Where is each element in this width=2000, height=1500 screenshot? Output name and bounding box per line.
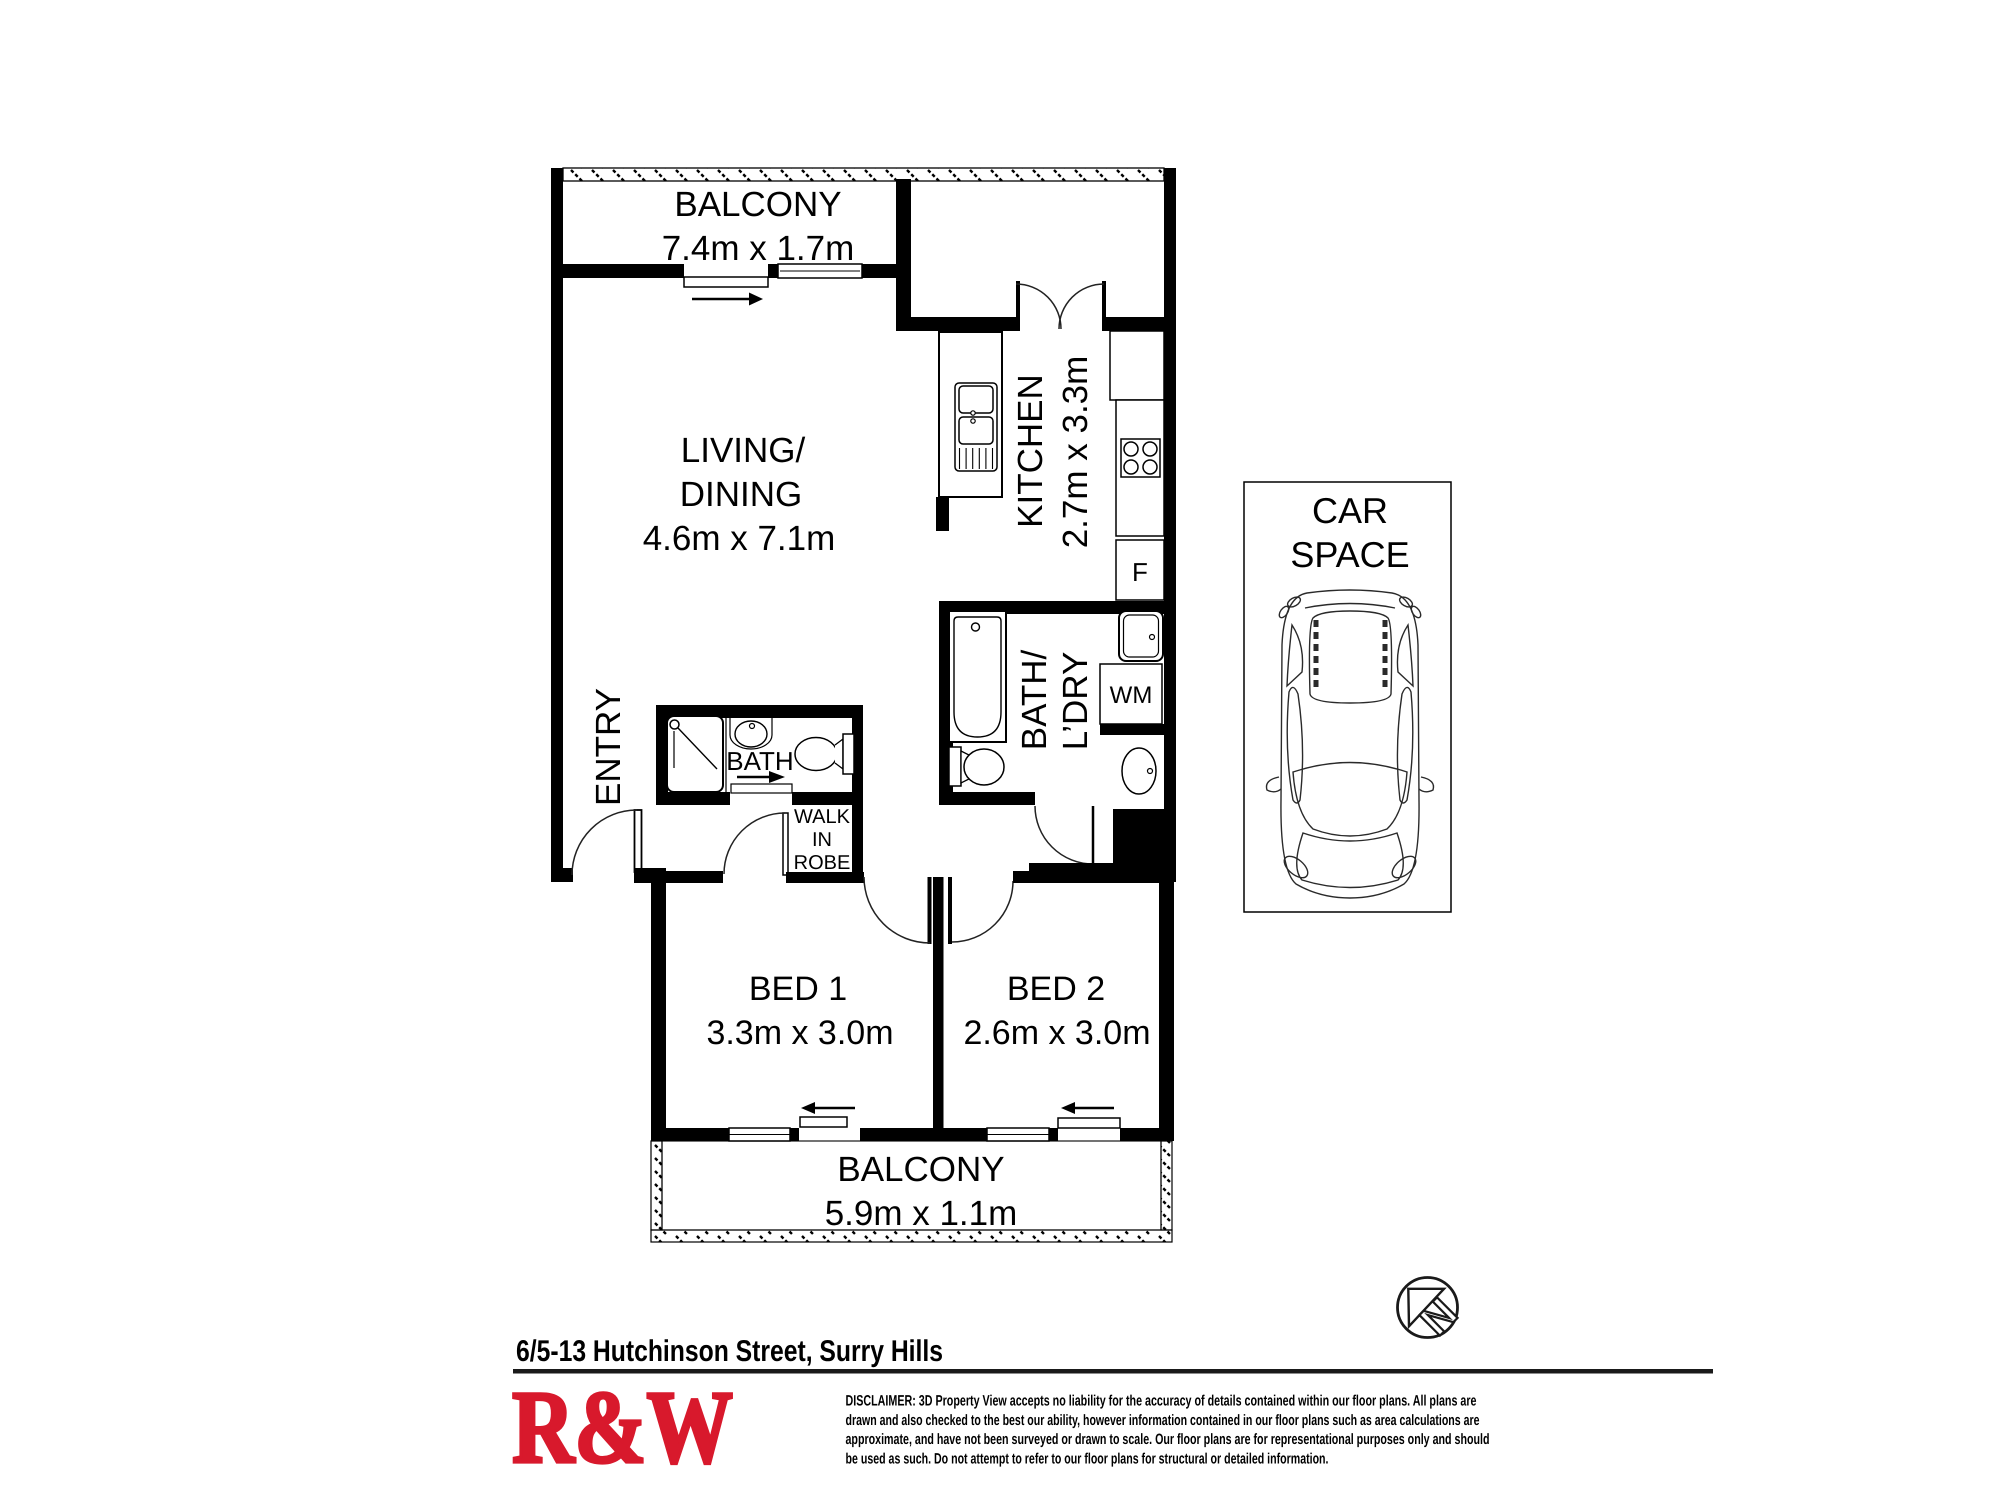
- svg-text:BED 2: BED 2: [1007, 970, 1105, 1008]
- svg-text:IN: IN: [812, 829, 832, 851]
- svg-text:WM: WM: [1110, 682, 1153, 709]
- svg-text:CAR: CAR: [1312, 490, 1388, 531]
- svg-text:L’DRY: L’DRY: [1056, 652, 1095, 751]
- svg-text:2.7m x 3.3m: 2.7m x 3.3m: [1056, 356, 1095, 549]
- svg-text:DINING: DINING: [680, 475, 803, 514]
- svg-text:KITCHEN: KITCHEN: [1011, 374, 1050, 528]
- svg-text:LIVING/: LIVING/: [681, 431, 806, 470]
- svg-text:F: F: [1132, 557, 1148, 587]
- svg-text:ROBE: ROBE: [794, 852, 851, 874]
- svg-text:be used as such. Do not attemp: be used as such. Do not attempt to refer…: [846, 1450, 1329, 1467]
- svg-text:WALK: WALK: [794, 806, 851, 828]
- svg-text:7.4m x 1.7m: 7.4m x 1.7m: [662, 229, 855, 268]
- svg-text:BATH: BATH: [726, 746, 793, 776]
- svg-text:BALCONY: BALCONY: [674, 185, 841, 224]
- svg-text:ENTRY: ENTRY: [589, 688, 628, 806]
- svg-text:BED 1: BED 1: [749, 970, 847, 1008]
- svg-text:BALCONY: BALCONY: [837, 1150, 1004, 1189]
- svg-text:2.6m x 3.0m: 2.6m x 3.0m: [963, 1014, 1150, 1052]
- svg-text:6/5-13 Hutchinson Street, Surr: 6/5-13 Hutchinson Street, Surry Hills: [516, 1335, 943, 1368]
- svg-text:BATH/: BATH/: [1015, 649, 1054, 750]
- svg-text:approximate, and have not been: approximate, and have not been surveyed …: [846, 1431, 1490, 1448]
- svg-text:R&W: R&W: [512, 1370, 733, 1485]
- svg-text:SPACE: SPACE: [1290, 534, 1409, 575]
- svg-text:4.6m x 7.1m: 4.6m x 7.1m: [643, 519, 836, 558]
- svg-text:3.3m x 3.0m: 3.3m x 3.0m: [706, 1014, 893, 1052]
- svg-text:DISCLAIMER: 3D Property View a: DISCLAIMER: 3D Property View accepts no …: [846, 1393, 1477, 1410]
- svg-text:5.9m x 1.1m: 5.9m x 1.1m: [825, 1194, 1018, 1233]
- svg-text:drawn and also checked to the: drawn and also checked to the best our a…: [846, 1412, 1480, 1429]
